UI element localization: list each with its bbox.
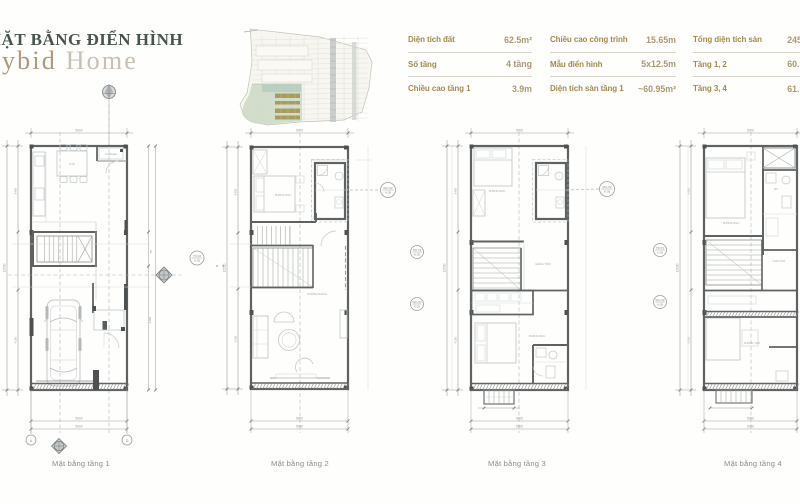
svg-text:WC: WC — [774, 188, 778, 191]
svg-text:5000: 5000 — [296, 417, 303, 421]
svg-text:A.05: A.05 — [604, 190, 611, 194]
svg-text:A.05: A.05 — [194, 259, 201, 263]
svg-text:PHÒNG NGỦ: PHÒNG NGỦ — [275, 192, 292, 197]
svg-text:5000: 5000 — [75, 425, 82, 429]
svg-text:Cupboard: Cupboard — [105, 152, 117, 156]
svg-text:4100: 4100 — [14, 336, 18, 343]
svg-text:5400: 5400 — [687, 187, 691, 194]
svg-text:TK.02: TK.02 — [193, 254, 201, 258]
svg-text:A: A — [30, 439, 33, 443]
svg-text:5400: 5400 — [234, 188, 238, 195]
svg-text:Mặt bằng tầng 1: Mặt bằng tầng 1 — [52, 459, 110, 468]
svg-text:5000: 5000 — [296, 129, 303, 133]
svg-text:Mặt bằng tầng 3: Mặt bằng tầng 3 — [488, 459, 546, 468]
svg-text:5000: 5000 — [747, 417, 754, 421]
svg-text:A.05: A.05 — [657, 303, 664, 307]
svg-text:WC.02: WC.02 — [655, 298, 665, 302]
svg-text:4100: 4100 — [234, 335, 238, 342]
svg-text:PHÒNG NGỦ: PHÒNG NGỦ — [529, 333, 546, 338]
svg-text:PHÒNG KHÁCH: PHÒNG KHÁCH — [307, 291, 327, 296]
svg-text:TR.T3: TR.T3 — [413, 248, 422, 252]
svg-text:GIẾNG TRỜI: GIẾNG TRỜI — [535, 261, 551, 266]
svg-text:5000: 5000 — [516, 417, 523, 421]
svg-text:PHÒNG NGỦ: PHÒNG NGỦ — [489, 188, 506, 193]
svg-text:12500: 12500 — [3, 263, 7, 272]
svg-text:A.05: A.05 — [414, 305, 421, 309]
svg-text:12500: 12500 — [676, 263, 680, 272]
svg-text:75: 75 — [149, 250, 153, 254]
svg-text:WC.03: WC.03 — [412, 300, 422, 304]
svg-text:TR.T4: TR.T4 — [656, 246, 665, 250]
svg-text:P.ĂN: P.ĂN — [69, 162, 75, 166]
svg-text:Mặt bằng tầng 4: Mặt bằng tầng 4 — [724, 459, 782, 468]
svg-text:WC.02: WC.02 — [602, 185, 612, 189]
svg-text:M: M — [215, 264, 219, 267]
svg-text:5400: 5400 — [454, 187, 458, 194]
svg-text:5000: 5000 — [75, 417, 82, 421]
svg-text:3400: 3400 — [148, 316, 152, 323]
svg-text:A.05: A.05 — [657, 251, 664, 255]
svg-text:5000: 5000 — [747, 129, 754, 133]
svg-text:5000: 5000 — [75, 129, 82, 133]
svg-text:5000: 5000 — [747, 425, 754, 429]
svg-text:5000: 5000 — [516, 425, 523, 429]
svg-text:A.05: A.05 — [385, 191, 392, 195]
svg-text:Mặt bằng tầng 2: Mặt bằng tầng 2 — [271, 459, 329, 468]
svg-text:A.05: A.05 — [414, 253, 421, 257]
svg-text:GIAN THỜ: GIAN THỜ — [773, 258, 786, 263]
svg-text:5000: 5000 — [296, 425, 303, 429]
svg-text:PHÒNG NGỦ: PHÒNG NGỦ — [723, 220, 740, 225]
svg-text:WC.02: WC.02 — [383, 186, 393, 190]
svg-text:12500: 12500 — [443, 263, 447, 272]
svg-text:5000: 5000 — [516, 129, 523, 133]
svg-text:5400: 5400 — [14, 187, 18, 194]
svg-text:D: D — [126, 439, 129, 443]
svg-text:4100: 4100 — [454, 336, 458, 343]
svg-text:4100: 4100 — [687, 336, 691, 343]
